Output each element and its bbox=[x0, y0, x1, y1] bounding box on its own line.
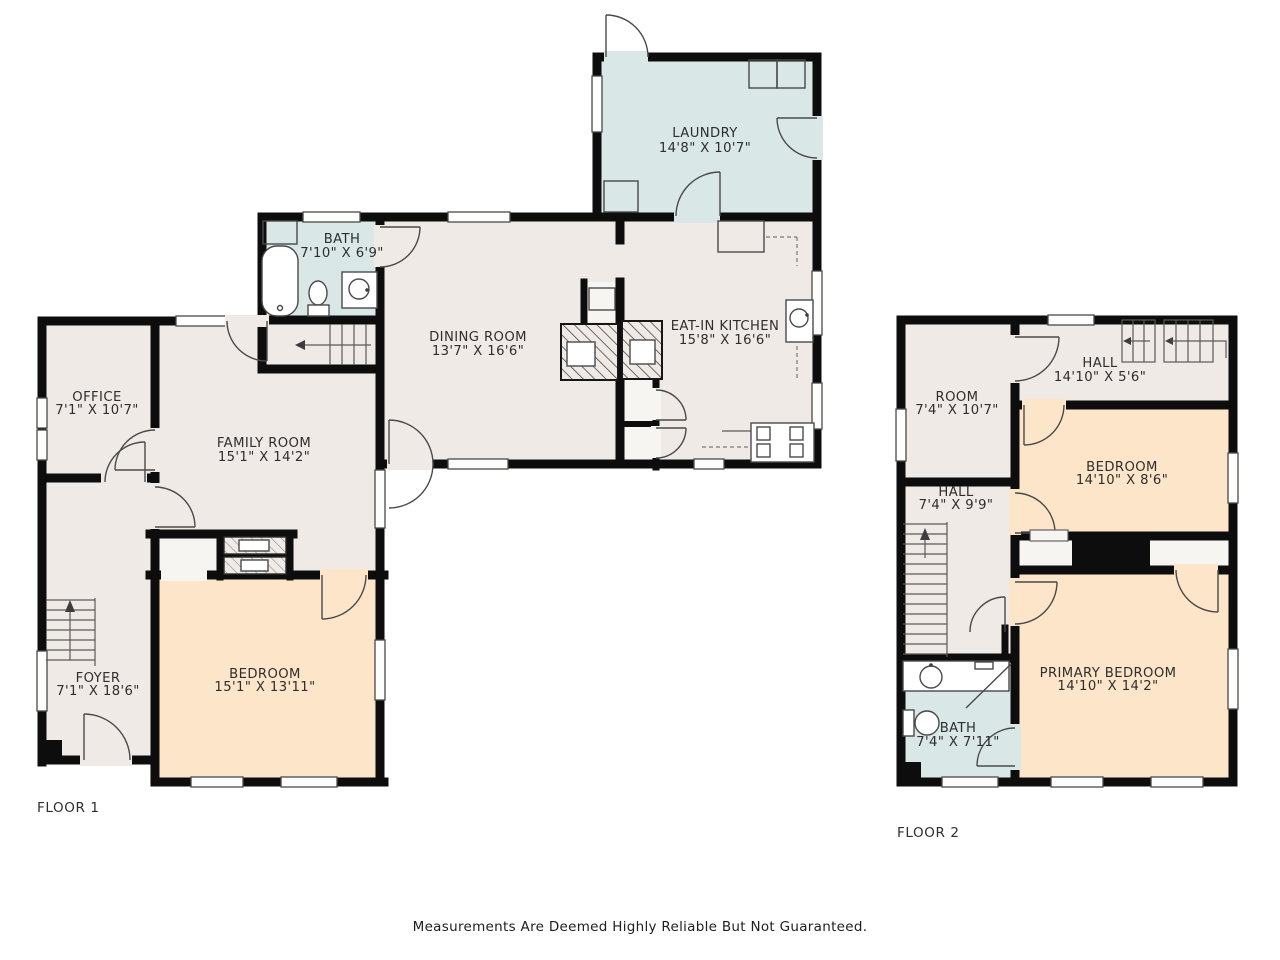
chimney-block bbox=[1072, 532, 1150, 574]
room-label-dining-name: DINING ROOM bbox=[429, 330, 527, 345]
room-label-hall-upper-dims: 14'10" X 5'6" bbox=[1054, 370, 1146, 385]
room-label-dining-dims: 13'7" X 16'6" bbox=[432, 344, 524, 359]
room-label-bedroom2-dims: 14'10" X 8'6" bbox=[1076, 473, 1168, 488]
floor-2-label: FLOOR 2 bbox=[897, 825, 960, 841]
room-label-bath2-dims: 7'4" X 7'11" bbox=[916, 735, 1000, 750]
floor-plan-page: LAUNDRY 14'8" X 10'7" BATH 7'10" X 6'9" … bbox=[0, 0, 1280, 960]
bathtub bbox=[262, 246, 298, 316]
bedroom-entry-nook bbox=[286, 534, 384, 575]
room-label-room2-dims: 7'4" X 10'7" bbox=[915, 403, 999, 418]
room-label-laundry-name: LAUNDRY bbox=[672, 126, 738, 141]
bedroom-closet bbox=[155, 534, 220, 575]
floor-2-plan: ROOM 7'4" X 10'7" HALL 14'10" X 5'6" BED… bbox=[896, 315, 1238, 841]
room-label-family-dims: 15'1" X 14'2" bbox=[218, 450, 310, 465]
room-label-foyer-dims: 7'1" X 18'6" bbox=[56, 684, 140, 699]
bath2-vanity bbox=[903, 661, 1009, 691]
room-label-kitchen-name: EAT-IN KITCHEN bbox=[671, 319, 780, 334]
floor-1-plan: LAUNDRY 14'8" X 10'7" BATH 7'10" X 6'9" … bbox=[37, 15, 823, 816]
floor-1-label: FLOOR 1 bbox=[37, 800, 100, 816]
wall-block bbox=[897, 762, 921, 784]
room-label-bedroom1-dims: 15'1" X 13'11" bbox=[214, 680, 315, 695]
fireplace bbox=[561, 321, 662, 380]
disclaimer-text: Measurements Are Deemed Highly Reliable … bbox=[413, 919, 868, 935]
room-label-family-name: FAMILY ROOM bbox=[217, 436, 311, 451]
room-label-laundry-dims: 14'8" X 10'7" bbox=[659, 141, 751, 156]
floor-plan-canvas: LAUNDRY 14'8" X 10'7" BATH 7'10" X 6'9" … bbox=[0, 0, 1280, 960]
room-label-kitchen-dims: 15'8" X 16'6" bbox=[679, 333, 771, 348]
wall-block bbox=[38, 740, 62, 762]
room-label-hall-lower-dims: 7'4" X 9'9" bbox=[919, 498, 994, 513]
room-label-bath1-dims: 7'10" X 6'9" bbox=[300, 246, 384, 261]
toilet bbox=[308, 281, 329, 316]
room-label-bath1-name: BATH bbox=[324, 232, 361, 247]
bath-sink bbox=[342, 272, 377, 308]
room-label-bath2-name: BATH bbox=[940, 721, 977, 736]
room-label-hall-upper-name: HALL bbox=[1082, 356, 1117, 371]
bath2-toilet bbox=[903, 710, 939, 736]
room-label-office-dims: 7'1" X 10'7" bbox=[55, 403, 139, 418]
room-label-primary-dims: 14'10" X 14'2" bbox=[1057, 679, 1158, 694]
stove bbox=[751, 423, 814, 462]
